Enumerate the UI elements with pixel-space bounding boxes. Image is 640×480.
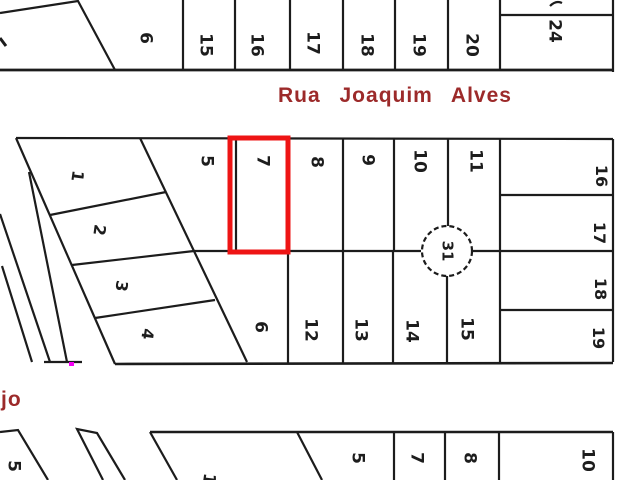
lot-line — [50, 192, 166, 215]
main-block-north-line — [16, 138, 613, 139]
lot-line — [0, 430, 48, 480]
block-number-circle — [422, 226, 472, 276]
road-edge — [77, 429, 125, 480]
plat-map: Rua Joaquim Alves jo 6151617181920241234… — [0, 0, 640, 480]
stray-magenta-dot — [69, 362, 74, 366]
lot-line — [297, 432, 322, 480]
lot-line — [95, 300, 215, 318]
selected-lot-7-highlight[interactable] — [230, 138, 288, 252]
cut-number-fragment — [550, 2, 562, 6]
road-edge — [2, 266, 32, 362]
lot-line — [72, 251, 194, 265]
road-edge — [29, 172, 67, 362]
cut-number-fragment — [0, 38, 6, 46]
plat-map-lines — [0, 0, 640, 480]
main-block-south-line — [115, 363, 613, 364]
main-block-west-line — [16, 138, 115, 364]
top-block-wedge — [0, 1, 115, 70]
lot-line — [150, 432, 177, 480]
